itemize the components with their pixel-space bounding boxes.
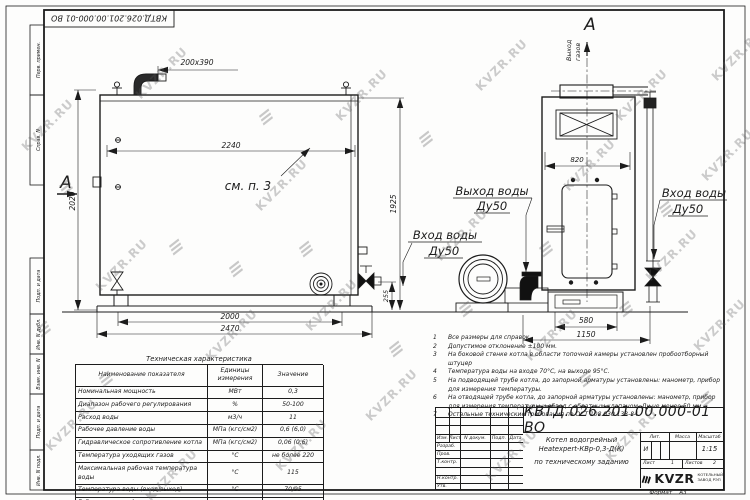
gas-outlet-label-2: газов	[575, 43, 582, 61]
water-outlet-label: Выход воды	[455, 184, 528, 198]
note-number: 3	[433, 351, 448, 368]
margin-label: Справ. N	[36, 129, 42, 151]
tech-row-name: Рабочее давление воды	[76, 425, 208, 438]
document-name: Котел водогрейный Heatexpert-КВр-0,3-Д(К…	[523, 433, 640, 488]
note-number: 2	[433, 343, 448, 352]
tech-col-header: Значение	[263, 365, 324, 387]
tech-row-value: 0,06 (0,6)	[263, 438, 324, 451]
doc-name-line3: по техническому заданию	[523, 458, 640, 467]
format-label: Формат А3	[612, 490, 724, 496]
side-inlet-valve	[358, 266, 381, 289]
col-list: Лист	[449, 436, 460, 441]
dim-height-left: 2020	[68, 191, 77, 210]
margin-label: Инв. N подл.	[36, 454, 42, 486]
col-podp: Подп.	[490, 436, 508, 441]
sheets-label: Листов	[685, 461, 703, 466]
note-text: Все размеры для справок	[448, 334, 727, 343]
tech-row-name: Расход воды	[76, 412, 208, 425]
tech-row-value: 11	[263, 412, 324, 425]
sheets-value: 2	[713, 461, 716, 466]
lit-value: И	[641, 445, 651, 453]
water-inlet-label-front: Вход воды	[662, 186, 726, 200]
scale-label: Масштаб	[696, 435, 723, 440]
margin-label: Подп. и дата	[36, 406, 42, 439]
tech-row-value: 115	[263, 463, 324, 485]
section-label-a-left: А	[59, 173, 72, 193]
section-label-a-top: А	[583, 15, 596, 35]
note-text: Допустимое отклонение ±100 мм.	[448, 343, 727, 352]
margin-label: Подп. и дата	[36, 270, 42, 303]
note-number: 4	[433, 368, 448, 377]
note-text: На боковой стенке котла в области топочн…	[448, 351, 727, 368]
lit-label: Лит.	[641, 435, 669, 440]
tech-row-name: Гидравлическое сопротивление котла	[76, 438, 208, 451]
tech-row-unit: МПа (кгс/см2)	[208, 438, 263, 451]
water-inlet-dn-front: Ду50	[672, 202, 703, 216]
water-outlet-dn: Ду50	[476, 199, 507, 213]
note-item: 4 Температура воды на входе 70°С, на вых…	[433, 368, 727, 377]
tech-row-name: Температура воды (вход/выход)	[76, 485, 208, 498]
inlet-pipe-valve	[644, 92, 661, 302]
tech-row-unit: МВт	[208, 387, 263, 400]
sig-row-label: Утв.	[437, 484, 461, 489]
tech-row-name: Номинальная мощность	[76, 387, 208, 400]
tech-row-unit: °С	[208, 485, 263, 498]
company-line2: ЗАВОД РЭП	[697, 478, 723, 483]
sig-row-label: Разраб.	[437, 444, 461, 449]
tech-row-value: 0,3	[263, 387, 324, 400]
note-text: На подводящей трубе котла, до запорной а…	[448, 377, 727, 394]
lit-mass-scale-section: Лит. Масса Масштаб И 1:15 Лист 1 Листов …	[640, 433, 722, 488]
drawing-sheet: Перв. примен. Справ. N Подп. и дата Инв.…	[0, 0, 750, 500]
dim-overall: 2470	[220, 324, 239, 333]
tech-row-unit: МПа (кгс/см2)	[208, 425, 263, 438]
tech-row-value: 70/95	[263, 485, 324, 498]
col-doc: N докум.	[460, 436, 490, 441]
margin-label: Инв. N дубл.	[36, 318, 42, 349]
dim-base: 2000	[220, 312, 239, 321]
note-number: 5	[433, 377, 448, 394]
water-inlet-dn: Ду50	[428, 244, 459, 258]
tech-col-header: Единицы измерения	[208, 365, 263, 387]
dim-base-front: 580	[579, 316, 594, 325]
tech-row-unit: °С	[208, 463, 263, 485]
kvzr-flame-icon	[641, 471, 651, 486]
tech-row-name: Диапазон рабочего регулирования	[76, 399, 208, 412]
tech-row-name: Максимальная рабочая температура воды	[76, 463, 208, 485]
tech-table: Наименование показателя Единицы измерени…	[75, 364, 323, 500]
tech-row-name: Температура уходящих газов	[76, 451, 208, 464]
dim-width-top: 2240	[221, 141, 240, 150]
sig-row-label: Н.контр.	[437, 476, 461, 481]
sheet-value: 1	[671, 461, 674, 466]
company-logo-cell: KVZR КОТЕЛЬНЫЙ ЗАВОД РЭП	[641, 468, 723, 488]
sheet-label: Лист	[643, 461, 655, 466]
water-inlet-label: Вход воды	[413, 228, 477, 242]
see-note-ref: см. п. 3	[225, 179, 271, 193]
tech-row-unit: м3/ч	[208, 412, 263, 425]
title-block: КВТД.026.201.00.000-01 ВО Изм. Лист N до…	[435, 407, 724, 490]
margin-label: Перв. примен.	[36, 42, 42, 78]
dim-foot: 255	[382, 290, 390, 302]
technical-characteristics: Техническая характеристика Наименование …	[75, 355, 323, 500]
tech-col-header: Наименование показателя	[76, 365, 208, 387]
format-word: Формат	[649, 490, 672, 496]
note-item: 2 Допустимое отклонение ±100 мм.	[433, 343, 727, 352]
note-item: 1 Все размеры для справок	[433, 334, 727, 343]
mass-label: Масса	[669, 435, 696, 440]
top-stamp-text: КВТД.026.201.00.000-01 ВО	[51, 14, 167, 23]
note-item: 5 На подводящей трубе котла, до запорной…	[433, 377, 727, 394]
company-name: KVZR	[654, 471, 694, 486]
tech-row-unit: °С	[208, 451, 263, 464]
format-size: А3	[679, 490, 686, 496]
note-item: 3 На боковой стенке котла в области топо…	[433, 351, 727, 368]
dim-chimney: 200х390	[180, 58, 213, 67]
document-designation: КВТД.026.201.00.000-01 ВО	[523, 408, 722, 433]
note-text: Температура воды на входе 70°С, на выход…	[448, 368, 727, 377]
margin-labels: Перв. примен. Справ. N Подп. и дата Инв.…	[36, 42, 42, 486]
tech-row-unit: %	[208, 399, 263, 412]
tech-row-value: 0,6 (6,0)	[263, 425, 324, 438]
gas-outlet-label-1: Выход	[566, 40, 573, 61]
col-izm: Изм.	[436, 436, 449, 441]
note-number: 1	[433, 334, 448, 343]
dim-height-right: 1925	[389, 194, 398, 213]
sig-row-label: Пров.	[437, 452, 461, 457]
side-view-dimensions	[57, 66, 482, 338]
side-view-texts: 200х390 2240 см. п. 3 2020 1925 255 2000…	[59, 58, 477, 333]
sig-row-label: Т.контр.	[437, 460, 461, 465]
margin-label: Взам. инв. N	[36, 358, 42, 390]
doc-name-line1: Котел водогрейный	[523, 436, 640, 445]
tech-row-value: не более 220	[263, 451, 324, 464]
water-outlet-pipe	[520, 272, 541, 300]
scale-value: 1:15	[696, 445, 723, 453]
tech-table-title: Техническая характеристика	[75, 355, 323, 363]
doc-name-line2: Heatexpert-КВр-0,3-Д(К)	[523, 445, 640, 454]
dim-width-front: 820	[570, 156, 584, 164]
col-data: Дата	[508, 436, 523, 441]
tech-row-value: 50-100	[263, 399, 324, 412]
